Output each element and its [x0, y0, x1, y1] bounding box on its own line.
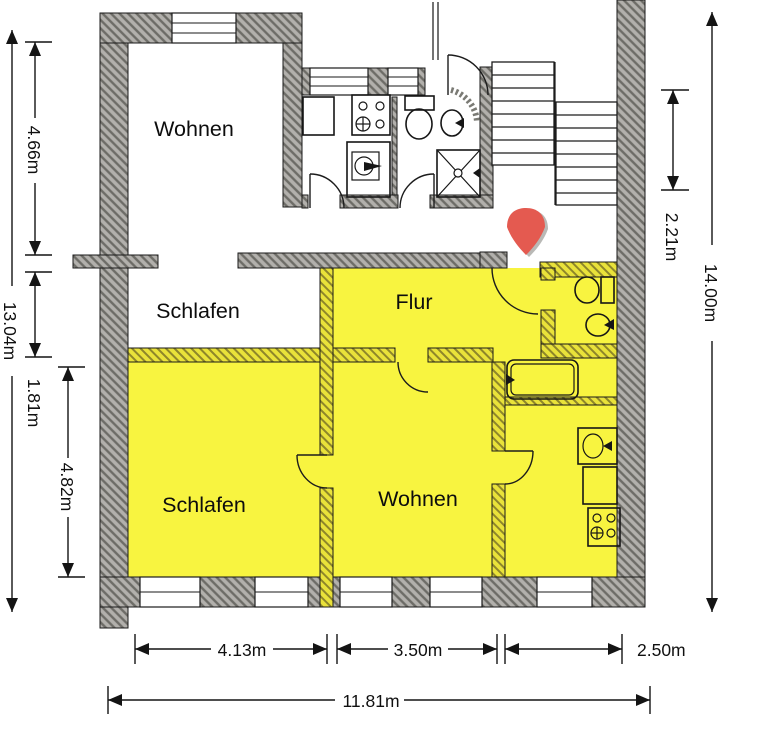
dimension-bottom-total: 11.81m [108, 686, 650, 714]
toilet-icon [405, 96, 434, 139]
kitchen-fixtures-top [303, 95, 390, 197]
kitchen-wc-partition [392, 97, 397, 195]
bath-west-wall-a [541, 268, 555, 280]
kitchen-sink-icon [347, 142, 390, 197]
flur-floor [333, 268, 617, 348]
dimension-label: 2.21m [662, 213, 682, 262]
floor-plan-canvas: Wohnen Schlafen Flur Schlafen Wohnen 13.… [0, 0, 766, 731]
dimension-label: 13.04m [0, 302, 20, 360]
wall-wohnen-east [283, 43, 302, 207]
dimension-left-middle: 1.81m [24, 272, 52, 427]
bathroom-fixtures-top [405, 96, 480, 197]
window [140, 577, 200, 607]
dimension-bottom-right: 2.50m [505, 634, 686, 664]
room-label-schlafen-bottom: Schlafen [162, 493, 246, 517]
cupboard-icon [303, 97, 334, 135]
door-swing-icon [310, 174, 344, 208]
schlafen-mid-south-wall [128, 348, 320, 362]
dimension-bottom-left: 4.13m [135, 634, 327, 664]
dimension-label: 2.50m [637, 640, 686, 660]
entrance-arrow-body [507, 208, 545, 255]
window [310, 68, 368, 95]
flur-south-wall-b [428, 348, 493, 362]
stairhall-west-wall [480, 67, 493, 208]
outer-wall-right [617, 0, 645, 607]
bath-south-wall [541, 344, 617, 358]
kitchen-west-wall [492, 484, 505, 577]
room-label-wohnen-top: Wohnen [154, 117, 234, 141]
mid-wall-entry-stub [480, 252, 507, 268]
window [172, 13, 236, 43]
dimension-right-stairs: 2.21m [661, 90, 689, 261]
dimension-label: 11.81m [342, 691, 399, 711]
left-rooms-floor [128, 348, 505, 577]
window [430, 577, 482, 607]
dimension-left-upper: 4.66m [24, 42, 52, 255]
window [537, 577, 592, 607]
door-swing-icon [400, 174, 434, 208]
floor-plan-page: Wohnen Schlafen Flur Schlafen Wohnen 13.… [0, 0, 766, 731]
dimension-label: 4.13m [218, 640, 267, 660]
dimension-label: 4.66m [24, 126, 44, 175]
window [340, 577, 392, 607]
mid-wall-main [238, 253, 480, 268]
right-rooms-floor [505, 344, 617, 577]
room-label-wohnen-bottom: Wohnen [378, 487, 458, 511]
dimension-label: 3.50m [394, 640, 443, 660]
room-label-schlafen-middle: Schlafen [156, 299, 240, 323]
entrance-arrow-icon [507, 208, 548, 257]
dimension-label: 1.81m [24, 379, 44, 428]
dimension-label: 14.00m [701, 264, 721, 322]
dimension-right-total: 14.00m [701, 12, 721, 612]
stove-icon [352, 95, 390, 135]
hand-basin-icon [441, 110, 464, 136]
divider-schlafen-wohnen [320, 488, 333, 607]
outer-wall-left [100, 13, 128, 628]
dimension-bottom-middle: 3.50m [337, 634, 497, 664]
mid-wall-west [73, 255, 158, 268]
window [388, 68, 418, 95]
room-label-flur: Flur [395, 290, 432, 314]
tubroom-west-wall [492, 362, 505, 451]
dimension-left-total: 13.04m [0, 30, 20, 612]
shower-icon [437, 150, 480, 197]
divider-schlafen-flur [320, 268, 333, 455]
stairs-icon [492, 62, 617, 205]
dimension-left-lower: 4.82m [57, 367, 85, 577]
dimension-label: 4.82m [57, 463, 77, 512]
window [255, 577, 308, 607]
wall-stub-lines [433, 2, 438, 60]
flur-south-wall-a [333, 348, 395, 362]
corridor-south-wall-stub [302, 195, 308, 208]
